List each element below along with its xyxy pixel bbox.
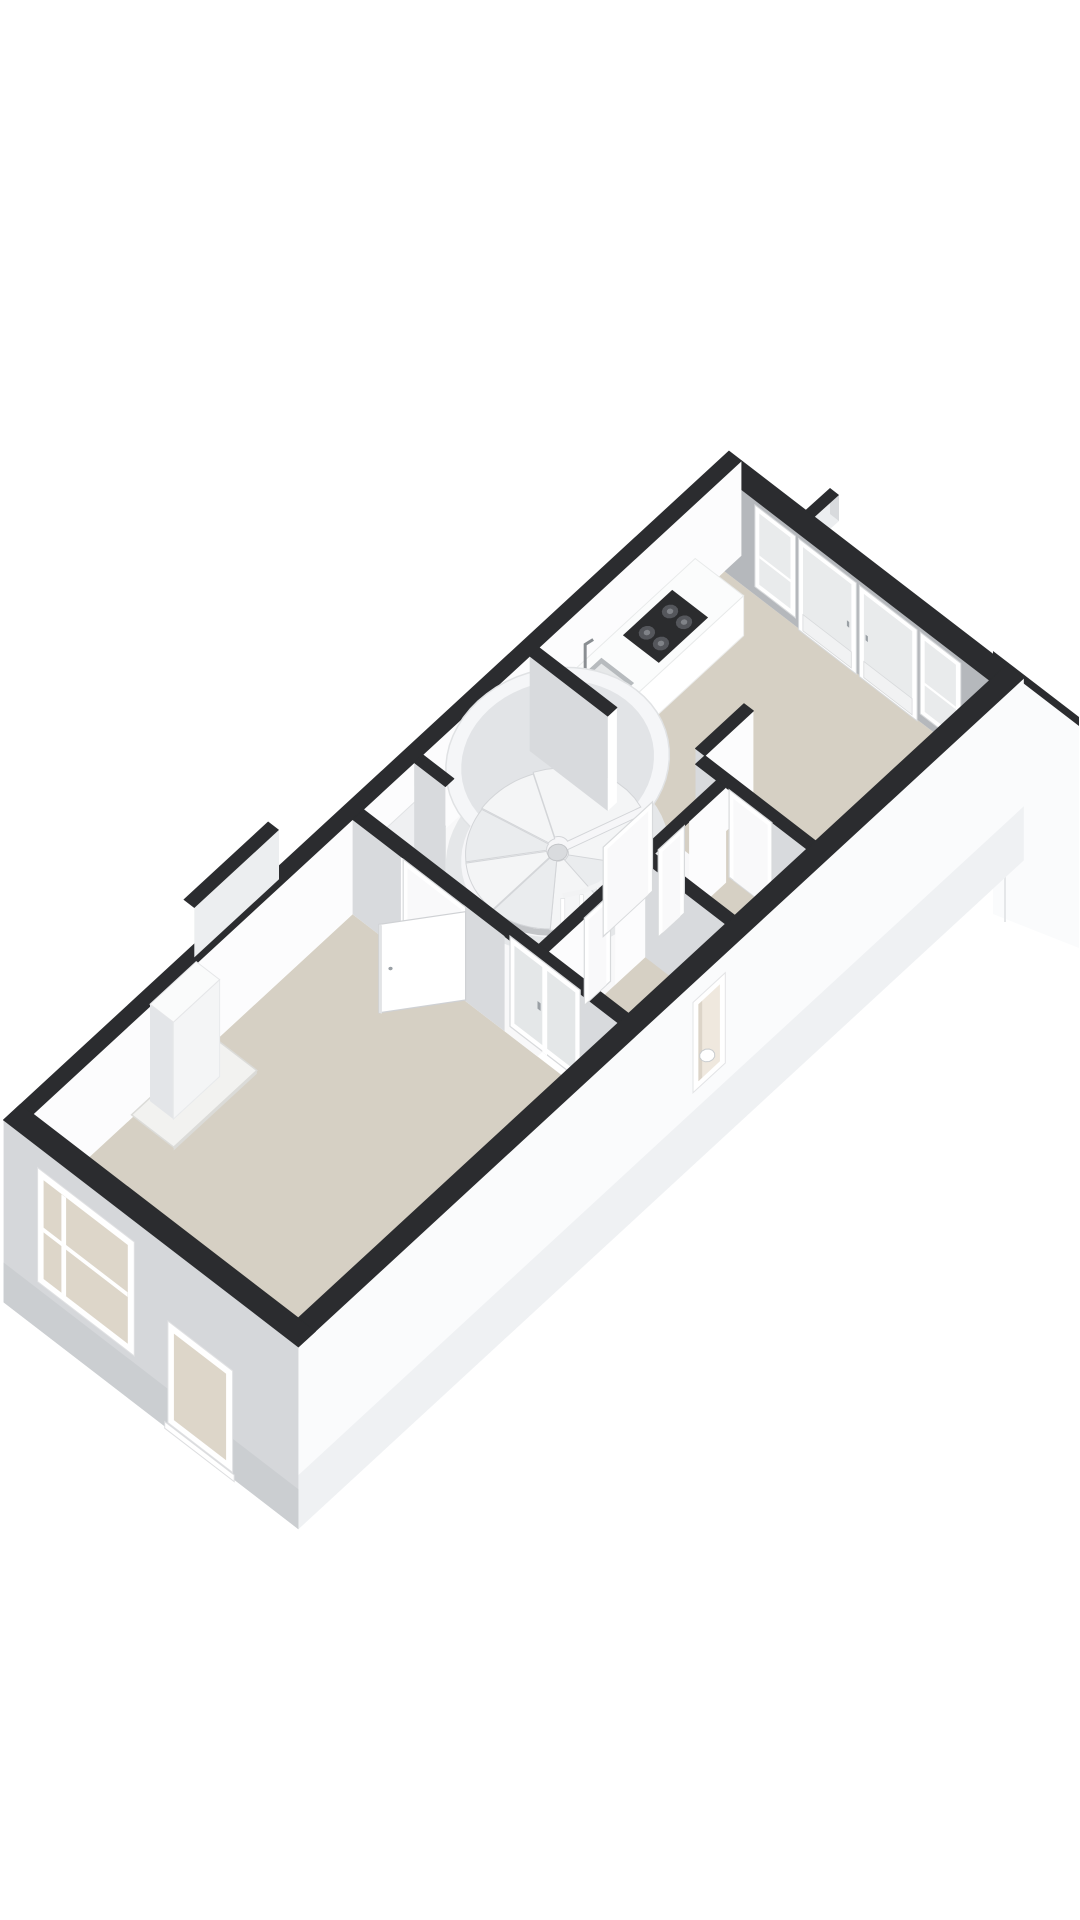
door-leaf-edge	[379, 924, 382, 1013]
chimney-side	[150, 1004, 173, 1119]
innerhall-door-frame-opening	[663, 835, 681, 933]
living-room-door	[379, 912, 466, 1014]
niche-jamb	[698, 1001, 702, 1081]
floorplan-screenshot	[0, 0, 1080, 1920]
glazed-door-stile	[542, 962, 547, 1056]
floorplan-3d-view	[0, 0, 1080, 1920]
door-leaf	[379, 912, 466, 1013]
toilet-glimpse	[700, 1049, 715, 1062]
kitchen-stub-wall-face	[608, 708, 617, 812]
stair-pole	[548, 844, 568, 861]
